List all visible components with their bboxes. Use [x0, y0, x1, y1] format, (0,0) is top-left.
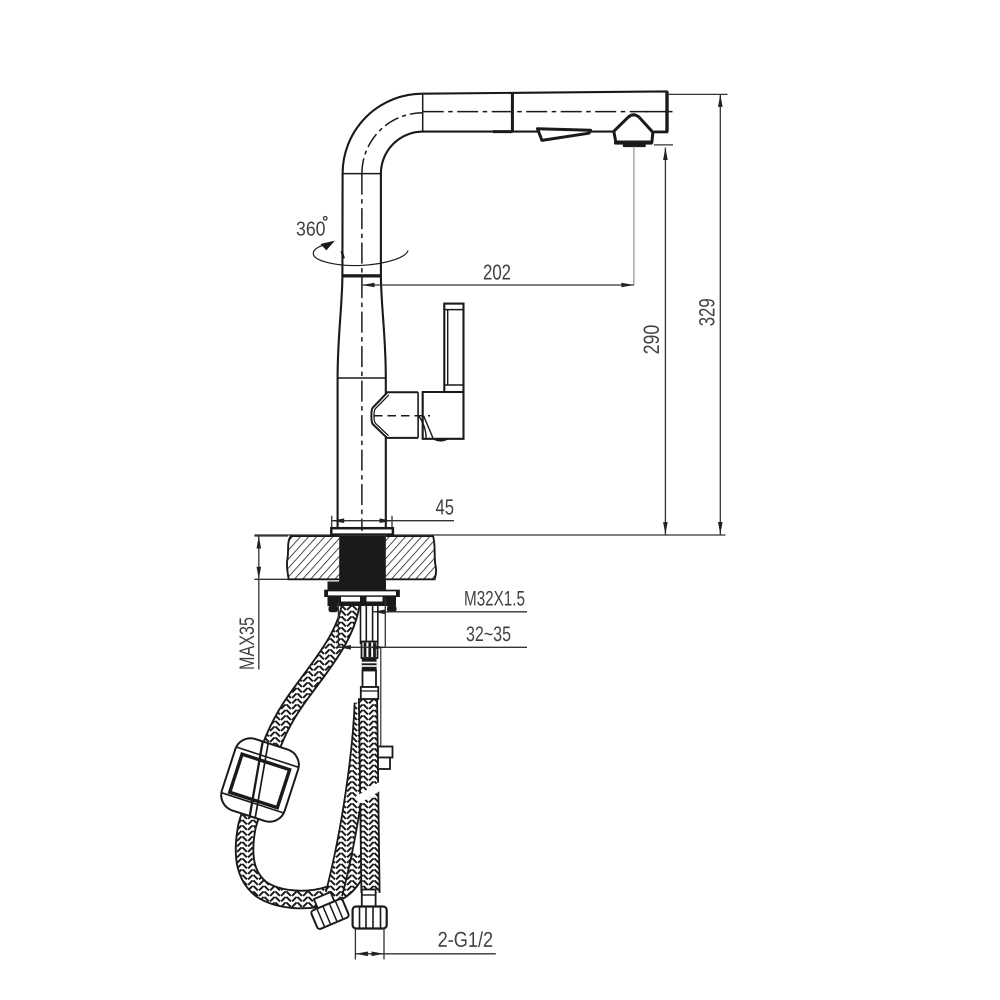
- svg-text:45: 45: [435, 495, 454, 520]
- svg-text:M32X1.5: M32X1.5: [464, 588, 525, 611]
- svg-text:2-G1/2: 2-G1/2: [438, 928, 494, 952]
- svg-text:32~35: 32~35: [466, 623, 511, 646]
- svg-text:MAX35: MAX35: [236, 617, 259, 670]
- svg-text:360: 360: [296, 219, 326, 241]
- svg-text:329: 329: [695, 298, 720, 326]
- svg-text:202: 202: [483, 261, 511, 285]
- svg-text:290: 290: [639, 325, 664, 355]
